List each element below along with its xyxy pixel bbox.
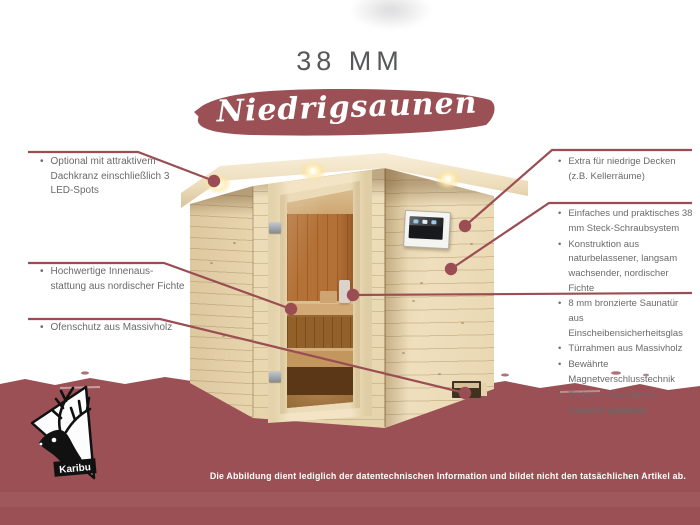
callout-dachkranz: Optional mit attraktivem Dachkranz einsc… <box>40 155 182 200</box>
callout-text: Bewährte Magnetverschlusstechnik <box>568 358 696 388</box>
wood-knot <box>210 262 213 264</box>
wood-knot <box>222 335 225 337</box>
callout-text: 8 mm bronzierte Saunatür aus Einscheiben… <box>568 297 696 341</box>
corner-edge <box>252 187 254 417</box>
callout-tuer-details: 8 mm bronzierte Saunatür aus Einscheiben… <box>558 297 696 419</box>
wood-knot <box>420 282 423 284</box>
wood-knot <box>233 242 236 244</box>
deer-nose <box>40 443 43 446</box>
banner: Niedrigsaunen <box>192 86 502 140</box>
callout-system-konstruktion: Einfaches und praktisches 38 mm Steck-Sc… <box>558 207 696 298</box>
deer-eye <box>52 438 57 443</box>
disclaimer-text: Die Abbildung dient lediglich der datent… <box>210 471 686 481</box>
sauna-left-wall <box>190 186 253 418</box>
karibu-logo: Karibu <box>14 380 110 492</box>
wood-knot <box>412 300 415 302</box>
callout-decken: Extra für niedrige Decken (z.B. Kellerrä… <box>558 155 696 186</box>
size-title: 38 MM <box>0 46 700 77</box>
bronze-glass-tint <box>287 190 353 408</box>
callout-text: Einfaches und praktisches 38 mm Steck-Sc… <box>568 207 696 237</box>
callout-text: Konstruktion aus naturbelassener, langsa… <box>568 238 696 297</box>
callout-text: Türbeschläge mittels Exzenter justierbar <box>568 389 696 419</box>
callout-ofenschutz: Ofenschutz aus Massivholz <box>40 321 210 337</box>
wood-knot <box>461 322 464 324</box>
callout-text: Hochwertige Innenaus-stattung aus nordis… <box>51 265 188 294</box>
corner-edge <box>384 169 386 427</box>
door-hinge-icon <box>269 222 281 233</box>
callout-text: Ofenschutz aus Massivholz <box>51 321 173 336</box>
sauna-door-glass <box>287 190 353 408</box>
wood-knot <box>470 243 473 245</box>
panel-glare <box>407 213 448 227</box>
wood-knot <box>438 373 441 375</box>
sauna-control-panel <box>403 210 451 249</box>
led-spot-icon <box>295 158 331 184</box>
oven-protection-vent <box>452 381 481 398</box>
door-hinge-icon <box>269 371 281 382</box>
callout-text: Türrahmen aus Massivholz <box>568 342 682 357</box>
gray-smudge-decoration <box>350 0 432 30</box>
wood-knot <box>402 352 405 354</box>
led-spot-icon <box>200 171 236 197</box>
callout-text: Optional mit attraktivem Dachkranz einsc… <box>51 155 182 199</box>
led-spot-icon <box>430 166 466 192</box>
sauna-product-diagram: 38 MM Niedrigsaunen <box>0 0 700 525</box>
callout-innenausstattung: Hochwertige Innenaus-stattung aus nordis… <box>40 265 188 295</box>
callout-text: Extra für niedrige Decken (z.B. Kellerrä… <box>568 155 696 185</box>
